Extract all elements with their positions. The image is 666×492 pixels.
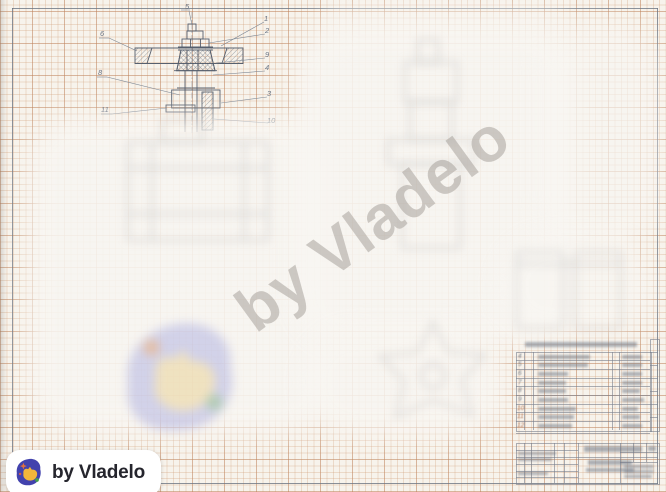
part-row-number: 11 [517,414,524,421]
part-row-number: 8 [518,388,522,395]
stamp-designation-blur [584,446,642,452]
drawing-sheet: 5 1 2 9 4 3 10 6 8 11 [0,0,666,492]
parts-table-header-blur [525,342,637,347]
part-row-number: 12 [517,423,524,430]
part-row-number: 4 [518,354,522,361]
stamp-scale-blur [648,446,656,451]
part-row-number: 7 [518,380,522,387]
badge-label: by Vladelo [52,462,145,484]
part-row-number: 5 [518,362,522,369]
part-row-number: 10 [517,406,524,413]
part-row-number: 9 [518,397,522,404]
part-row-number: 6 [518,371,522,378]
vladelo-logo-icon [14,457,44,489]
vladelo-badge: by Vladelo [6,450,161,492]
